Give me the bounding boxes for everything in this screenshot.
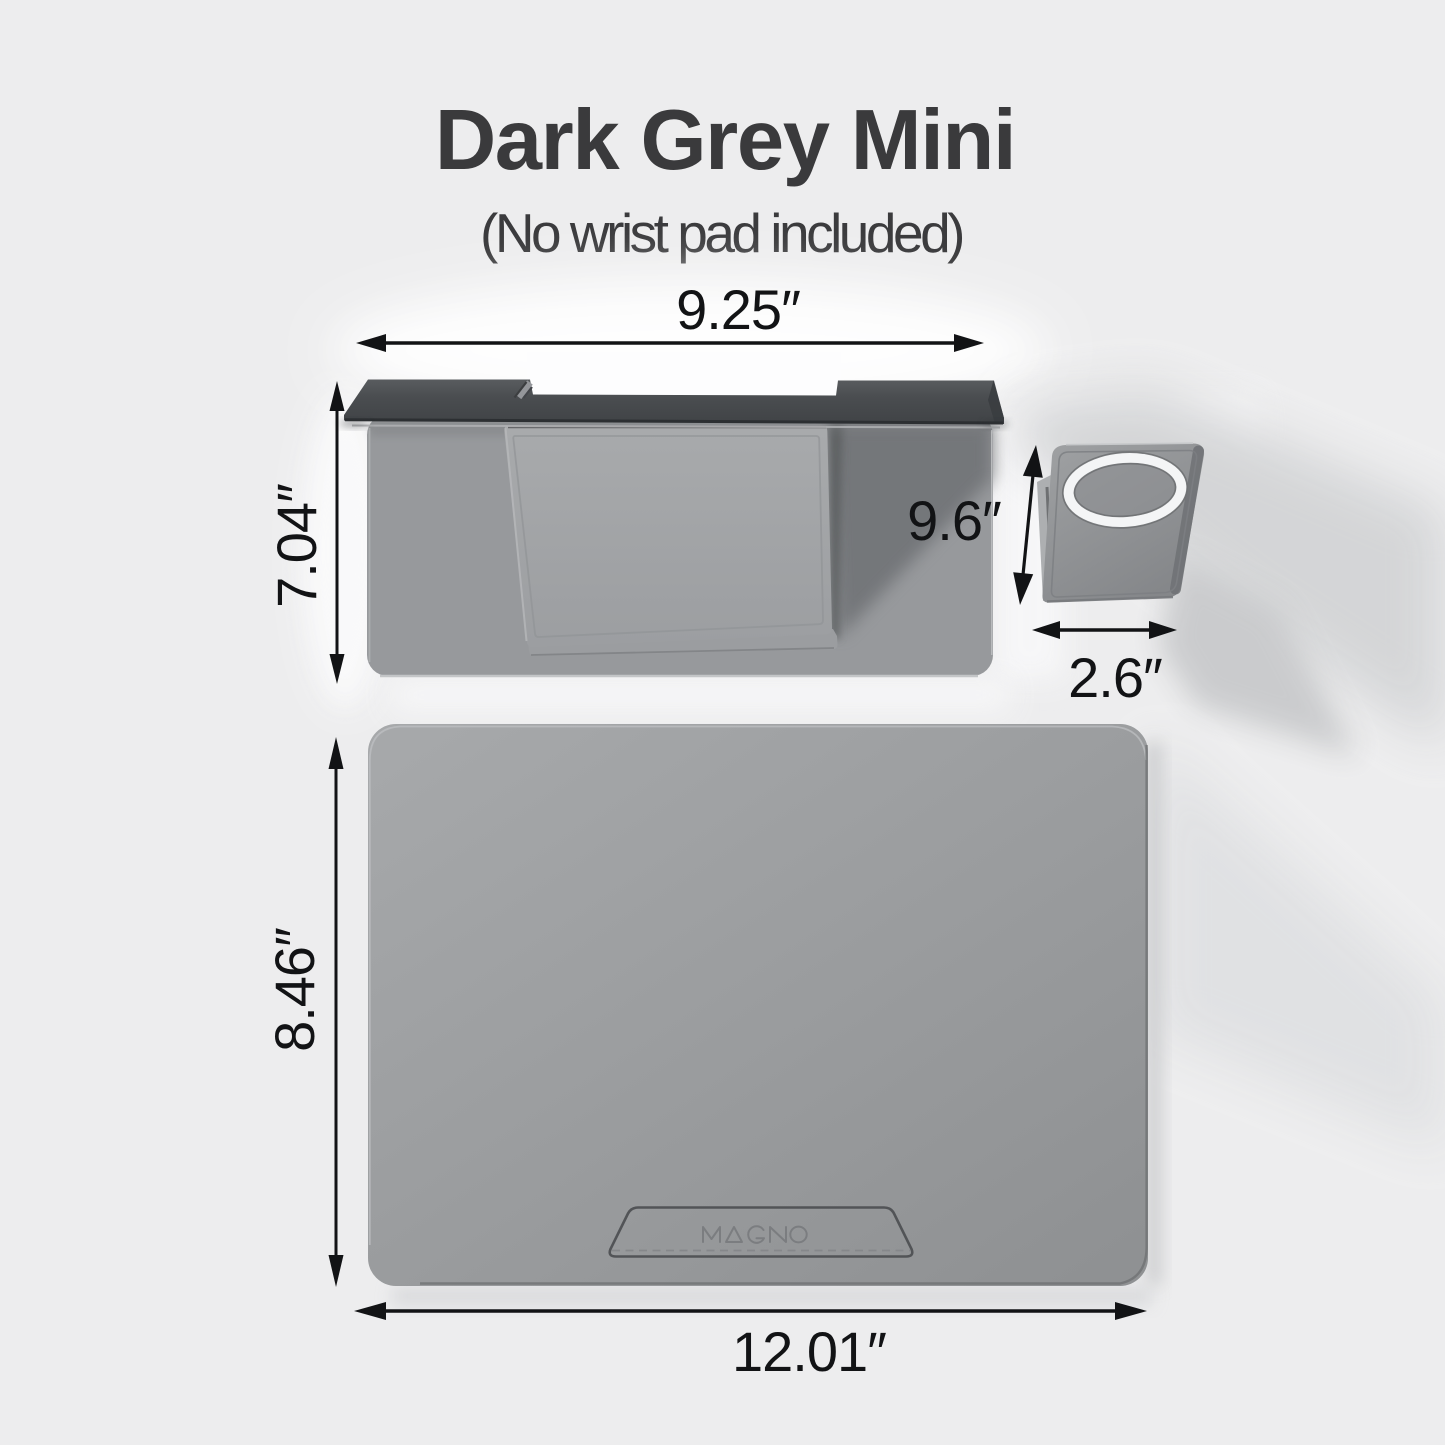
svg-text:9.6″: 9.6″: [907, 489, 1001, 552]
svg-text:8.46″: 8.46″: [263, 928, 326, 1052]
svg-text:9.25″: 9.25″: [676, 278, 800, 341]
svg-text:Dark Grey Mini: Dark Grey Mini: [435, 93, 1015, 188]
svg-text:12.01″: 12.01″: [732, 1320, 886, 1383]
svg-text:(No wrist pad included): (No wrist pad included): [480, 202, 962, 264]
svg-text:2.6″: 2.6″: [1068, 646, 1162, 709]
svg-text:7.04″: 7.04″: [265, 484, 328, 608]
